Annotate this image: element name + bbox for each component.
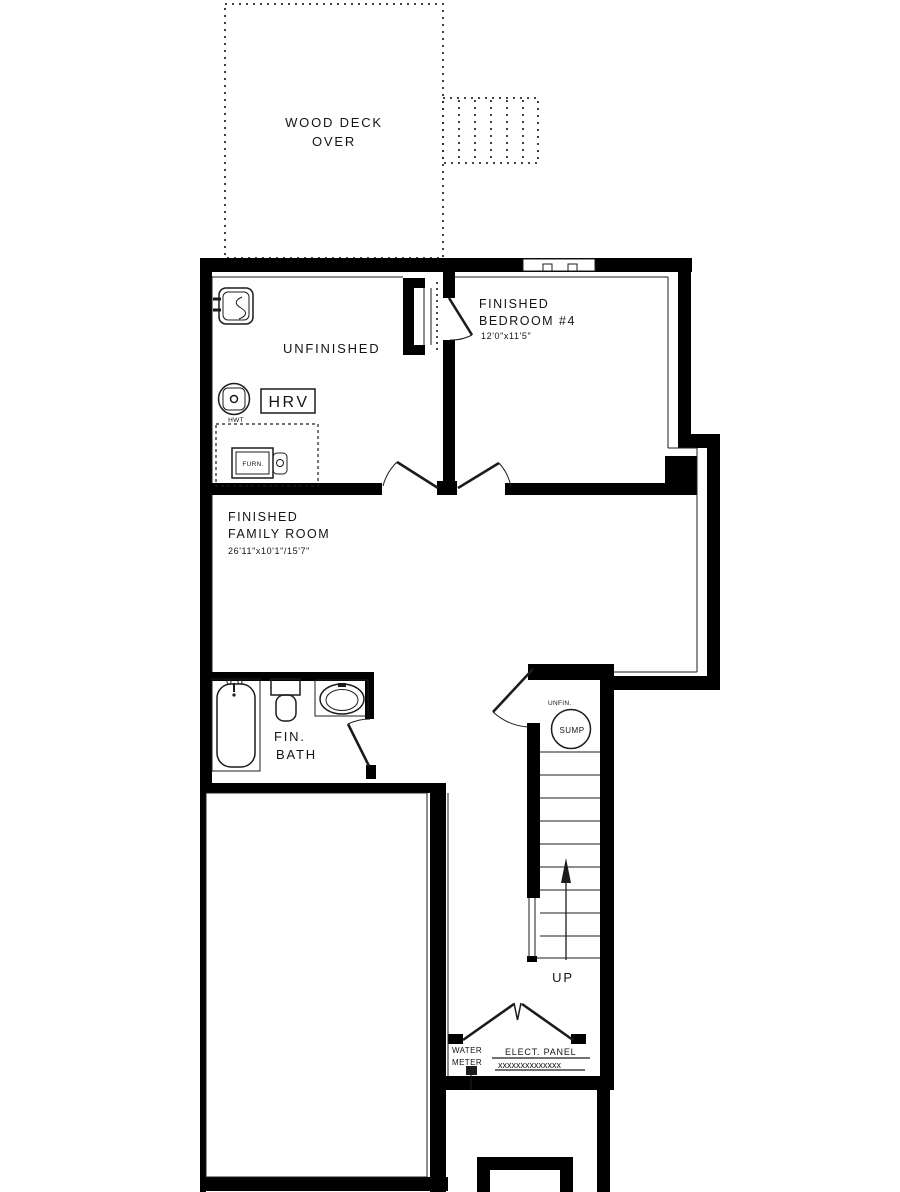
bedroom-dims: 12'0"x11'5" [481,331,531,341]
bath-label-line1: FIN. [274,729,306,744]
stair-rail [529,898,535,958]
toilet [271,679,300,721]
wood-deck-label-line1: WOOD DECK [285,115,383,130]
basement-floor-plan: WOOD DECK OVER [0,0,900,1192]
elect-panel-label: ELECT. PANEL [505,1047,576,1057]
mechanical-double-door [463,1003,573,1040]
hrv-label: HRV [269,394,310,411]
bathroom-sink [315,680,368,716]
up-arrow [561,858,571,960]
laundry-tub [213,288,253,324]
elect-panel-hatch: xxxxxxxxxxxxxx [498,1060,562,1070]
up-label: UP [552,970,574,985]
sump-area-label: UNFIN. [548,700,571,707]
bathroom-door [348,719,370,766]
sump-label: SUMP [559,726,584,735]
unfinished-label: UNFINISHED [283,341,380,356]
wood-deck-label-line2: OVER [312,134,356,149]
bath-label-line2: BATH [276,747,317,762]
floor-plan-page: WOOD DECK OVER [0,0,900,1192]
bedroom-closet [424,282,437,352]
family-room-label-line1: FINISHED [228,510,298,524]
family-room-label-line2: FAMILY ROOM [228,527,330,541]
bedroom-window [523,259,595,271]
bedroom-closet-door [449,298,472,340]
furnace-label: FURN. [242,461,263,468]
furnace [216,424,318,486]
hwt-label: HWT [228,417,244,424]
family-room-dims: 26'11"x10'1"/15'7" [228,546,310,556]
bedroom-label-line2: BEDROOM #4 [479,314,576,328]
water-meter-label-line1: WATER [452,1046,482,1055]
interior-walls [206,272,697,1044]
hot-water-tank [219,384,250,415]
bathtub [212,679,260,771]
bedroom-label-line1: FINISHED [479,297,549,311]
sump-closet-door [493,669,533,727]
water-meter-label-line2: METER [452,1058,482,1067]
wood-deck-outline [225,4,538,258]
